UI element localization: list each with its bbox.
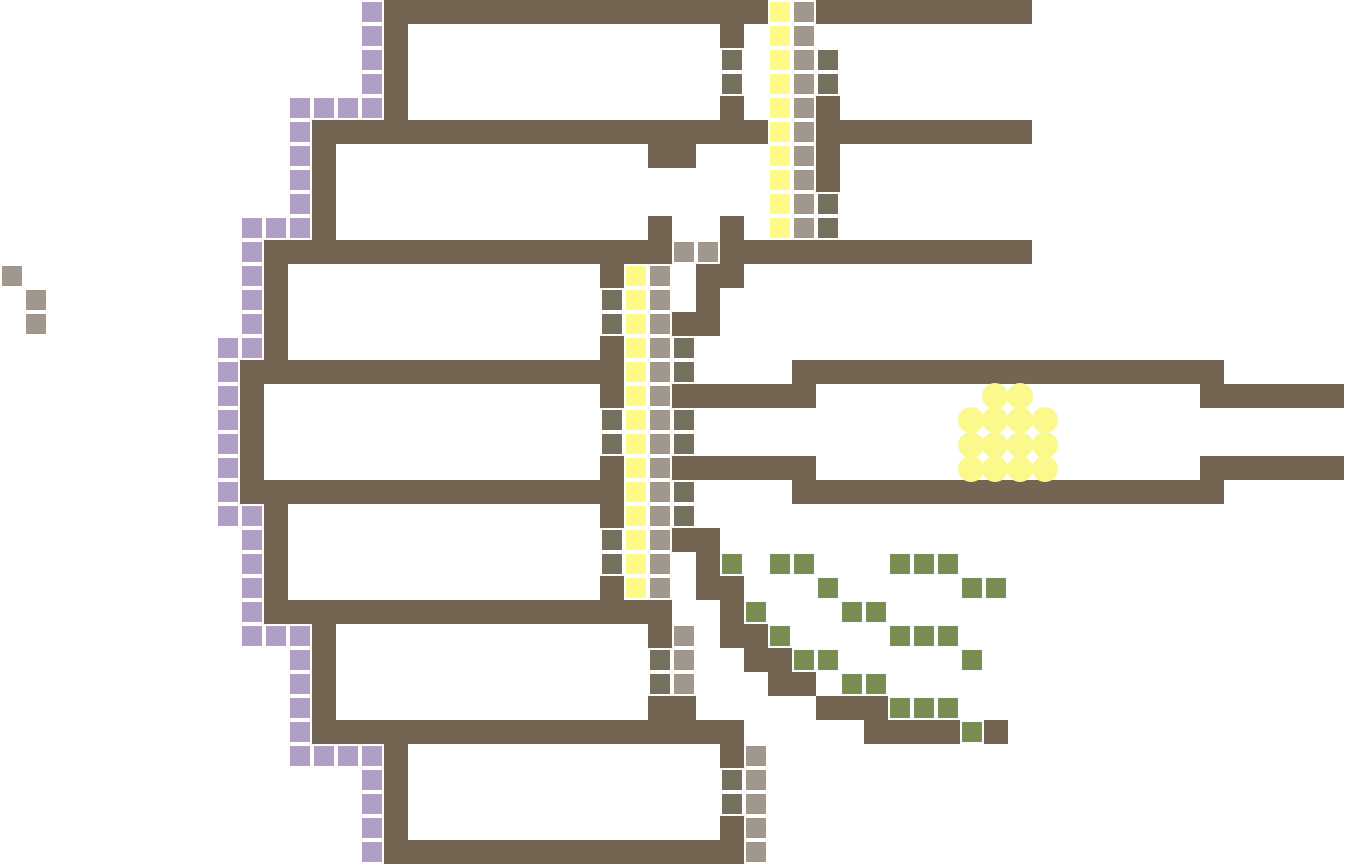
- tan-tile[interactable]: [650, 530, 670, 550]
- egg[interactable]: [1032, 456, 1058, 482]
- dark-tile[interactable]: [818, 50, 838, 70]
- purple-tile[interactable]: [242, 218, 262, 238]
- dark-tile[interactable]: [650, 674, 670, 694]
- purple-tile[interactable]: [242, 506, 262, 526]
- wall-block: [720, 216, 744, 240]
- yellow-tile[interactable]: [626, 578, 646, 598]
- dark-tile[interactable]: [674, 434, 694, 454]
- wall-block: [264, 240, 672, 264]
- wall-block: [240, 360, 600, 384]
- tan-tile[interactable]: [26, 314, 46, 334]
- wall-block: [264, 600, 672, 624]
- egg[interactable]: [958, 407, 984, 433]
- wall-block: [864, 720, 960, 744]
- green-tile[interactable]: [866, 602, 886, 622]
- wall-block: [720, 816, 744, 864]
- tan-tile[interactable]: [746, 770, 766, 790]
- wall-block: [672, 528, 720, 552]
- wall-block: [312, 624, 336, 744]
- tan-tile[interactable]: [650, 338, 670, 358]
- tan-tile[interactable]: [674, 242, 694, 262]
- yellow-tile[interactable]: [770, 2, 790, 22]
- purple-tile[interactable]: [242, 530, 262, 550]
- egg[interactable]: [958, 432, 984, 458]
- dark-tile[interactable]: [602, 434, 622, 454]
- purple-tile[interactable]: [242, 242, 262, 262]
- dark-tile[interactable]: [602, 314, 622, 334]
- purple-tile[interactable]: [218, 434, 238, 454]
- wall-block: [336, 120, 768, 144]
- egg[interactable]: [1007, 456, 1033, 482]
- purple-tile[interactable]: [362, 50, 382, 70]
- tan-tile[interactable]: [650, 362, 670, 382]
- dark-tile[interactable]: [722, 50, 742, 70]
- green-tile[interactable]: [842, 602, 862, 622]
- green-tile[interactable]: [890, 626, 910, 646]
- yellow-tile[interactable]: [626, 386, 646, 406]
- green-tile[interactable]: [866, 674, 886, 694]
- tan-tile[interactable]: [650, 434, 670, 454]
- egg[interactable]: [1032, 407, 1058, 433]
- dark-tile[interactable]: [674, 338, 694, 358]
- purple-tile[interactable]: [314, 98, 334, 118]
- green-tile[interactable]: [986, 578, 1006, 598]
- green-tile[interactable]: [770, 626, 790, 646]
- dark-tile[interactable]: [650, 650, 670, 670]
- wall-block: [816, 96, 840, 192]
- dark-tile[interactable]: [674, 410, 694, 430]
- green-tile[interactable]: [914, 698, 934, 718]
- wall-block: [816, 0, 1032, 24]
- green-tile[interactable]: [722, 554, 742, 574]
- wall-block: [264, 504, 288, 600]
- tan-tile[interactable]: [650, 506, 670, 526]
- green-tile[interactable]: [962, 578, 982, 598]
- tan-tile[interactable]: [650, 386, 670, 406]
- dark-tile[interactable]: [602, 554, 622, 574]
- tan-tile[interactable]: [794, 26, 814, 46]
- purple-tile[interactable]: [362, 794, 382, 814]
- purple-tile[interactable]: [362, 770, 382, 790]
- purple-tile[interactable]: [290, 98, 310, 118]
- yellow-tile[interactable]: [626, 530, 646, 550]
- purple-tile[interactable]: [242, 626, 262, 646]
- green-tile[interactable]: [914, 626, 934, 646]
- wall-block: [312, 120, 336, 240]
- green-tile[interactable]: [818, 578, 838, 598]
- yellow-tile[interactable]: [626, 458, 646, 478]
- tan-tile[interactable]: [650, 458, 670, 478]
- green-tile[interactable]: [794, 650, 814, 670]
- purple-tile[interactable]: [242, 266, 262, 286]
- wall-block: [648, 216, 672, 240]
- tan-tile[interactable]: [650, 410, 670, 430]
- tan-tile[interactable]: [674, 626, 694, 646]
- wall-block: [384, 24, 408, 120]
- wall-block: [816, 696, 888, 720]
- green-tile[interactable]: [794, 554, 814, 574]
- purple-tile[interactable]: [266, 218, 286, 238]
- yellow-tile[interactable]: [626, 410, 646, 430]
- tan-tile[interactable]: [794, 74, 814, 94]
- purple-tile[interactable]: [362, 2, 382, 22]
- purple-tile[interactable]: [362, 818, 382, 838]
- yellow-tile[interactable]: [770, 74, 790, 94]
- egg[interactable]: [1007, 432, 1033, 458]
- tan-tile[interactable]: [650, 266, 670, 286]
- wall-block: [384, 840, 720, 864]
- purple-tile[interactable]: [218, 338, 238, 358]
- purple-tile[interactable]: [362, 746, 382, 766]
- egg[interactable]: [1007, 407, 1033, 433]
- wall-block: [720, 576, 744, 648]
- tan-tile[interactable]: [794, 146, 814, 166]
- green-tile[interactable]: [770, 554, 790, 574]
- yellow-tile[interactable]: [770, 50, 790, 70]
- yellow-tile[interactable]: [626, 506, 646, 526]
- purple-tile[interactable]: [266, 626, 286, 646]
- purple-tile[interactable]: [290, 650, 310, 670]
- dark-tile[interactable]: [602, 290, 622, 310]
- green-tile[interactable]: [890, 698, 910, 718]
- wall-block: [768, 648, 792, 696]
- yellow-tile[interactable]: [626, 338, 646, 358]
- green-tile[interactable]: [962, 650, 982, 670]
- purple-tile[interactable]: [338, 746, 358, 766]
- tan-tile[interactable]: [794, 122, 814, 142]
- tan-tile[interactable]: [794, 98, 814, 118]
- purple-tile[interactable]: [338, 98, 358, 118]
- wall-block: [696, 552, 720, 600]
- green-tile[interactable]: [842, 674, 862, 694]
- purple-tile[interactable]: [290, 170, 310, 190]
- tan-tile[interactable]: [746, 746, 766, 766]
- yellow-tile[interactable]: [770, 146, 790, 166]
- tan-tile[interactable]: [674, 650, 694, 670]
- wall-block: [984, 720, 1008, 744]
- wall-block: [720, 96, 744, 120]
- purple-tile[interactable]: [242, 554, 262, 574]
- yellow-tile[interactable]: [770, 170, 790, 190]
- wall-block: [648, 624, 672, 648]
- wall-block: [720, 24, 744, 48]
- yellow-tile[interactable]: [626, 434, 646, 454]
- green-tile[interactable]: [890, 554, 910, 574]
- wall-block: [672, 312, 720, 336]
- dark-tile[interactable]: [674, 362, 694, 382]
- egg[interactable]: [1032, 432, 1058, 458]
- dark-tile[interactable]: [602, 410, 622, 430]
- dark-tile[interactable]: [818, 218, 838, 238]
- purple-tile[interactable]: [290, 698, 310, 718]
- tan-tile[interactable]: [650, 290, 670, 310]
- wall-block: [744, 624, 768, 672]
- purple-tile[interactable]: [290, 722, 310, 742]
- purple-tile[interactable]: [362, 842, 382, 862]
- tan-tile[interactable]: [650, 554, 670, 574]
- purple-tile[interactable]: [218, 410, 238, 430]
- wall-block: [600, 456, 624, 528]
- green-tile[interactable]: [938, 554, 958, 574]
- tan-tile[interactable]: [650, 482, 670, 502]
- purple-tile[interactable]: [362, 26, 382, 46]
- wall-block: [792, 672, 816, 696]
- tan-tile[interactable]: [746, 818, 766, 838]
- tan-tile[interactable]: [698, 242, 718, 262]
- wall-block: [792, 360, 1224, 384]
- wall-block: [384, 0, 768, 24]
- wall-block: [840, 120, 1032, 144]
- yellow-tile[interactable]: [626, 362, 646, 382]
- yellow-tile[interactable]: [626, 482, 646, 502]
- purple-tile[interactable]: [218, 506, 238, 526]
- wall-block: [696, 288, 720, 312]
- dark-tile[interactable]: [722, 770, 742, 790]
- tan-tile[interactable]: [26, 290, 46, 310]
- wall-block: [600, 264, 624, 288]
- purple-tile[interactable]: [218, 458, 238, 478]
- wall-block: [600, 336, 624, 408]
- tan-tile[interactable]: [674, 674, 694, 694]
- yellow-tile[interactable]: [626, 314, 646, 334]
- tan-tile[interactable]: [794, 2, 814, 22]
- purple-tile[interactable]: [218, 362, 238, 382]
- egg[interactable]: [982, 456, 1008, 482]
- wall-block: [696, 264, 744, 288]
- tan-tile[interactable]: [746, 842, 766, 862]
- wall-block: [672, 456, 816, 480]
- dark-tile[interactable]: [674, 482, 694, 502]
- yellow-tile[interactable]: [770, 98, 790, 118]
- purple-tile[interactable]: [290, 194, 310, 214]
- green-tile[interactable]: [746, 602, 766, 622]
- tan-tile[interactable]: [2, 266, 22, 286]
- tan-tile[interactable]: [794, 170, 814, 190]
- dark-tile[interactable]: [602, 530, 622, 550]
- wall-block: [720, 240, 1032, 264]
- wall-block: [1200, 456, 1344, 480]
- wall-block: [648, 696, 696, 720]
- dark-tile[interactable]: [722, 794, 742, 814]
- dark-tile[interactable]: [722, 74, 742, 94]
- egg[interactable]: [982, 432, 1008, 458]
- tan-tile[interactable]: [650, 578, 670, 598]
- game-board[interactable]: [0, 0, 1345, 865]
- wall-block: [720, 744, 744, 768]
- yellow-tile[interactable]: [770, 122, 790, 142]
- purple-tile[interactable]: [290, 674, 310, 694]
- purple-tile[interactable]: [290, 626, 310, 646]
- purple-tile[interactable]: [218, 386, 238, 406]
- purple-tile[interactable]: [362, 98, 382, 118]
- purple-tile[interactable]: [290, 122, 310, 142]
- wall-block: [264, 264, 288, 360]
- green-tile[interactable]: [914, 554, 934, 574]
- purple-tile[interactable]: [218, 482, 238, 502]
- wall-block: [336, 720, 744, 744]
- tan-tile[interactable]: [794, 218, 814, 238]
- egg[interactable]: [1007, 383, 1033, 409]
- wall-block: [600, 576, 624, 600]
- purple-tile[interactable]: [242, 602, 262, 622]
- yellow-tile[interactable]: [626, 554, 646, 574]
- purple-tile[interactable]: [290, 746, 310, 766]
- purple-tile[interactable]: [362, 74, 382, 94]
- egg[interactable]: [982, 407, 1008, 433]
- yellow-tile[interactable]: [770, 218, 790, 238]
- wall-block: [384, 744, 408, 840]
- wall-block: [1200, 384, 1344, 408]
- yellow-tile[interactable]: [770, 26, 790, 46]
- green-tile[interactable]: [962, 722, 982, 742]
- purple-tile[interactable]: [314, 746, 334, 766]
- tan-tile[interactable]: [794, 50, 814, 70]
- purple-tile[interactable]: [242, 578, 262, 598]
- tan-tile[interactable]: [650, 314, 670, 334]
- tan-tile[interactable]: [794, 194, 814, 214]
- dark-tile[interactable]: [818, 194, 838, 214]
- purple-tile[interactable]: [242, 290, 262, 310]
- egg[interactable]: [958, 456, 984, 482]
- wall-block: [792, 480, 1224, 504]
- purple-tile[interactable]: [290, 218, 310, 238]
- yellow-tile[interactable]: [770, 194, 790, 214]
- wall-block: [648, 144, 696, 168]
- purple-tile[interactable]: [290, 146, 310, 166]
- wall-block: [240, 480, 600, 504]
- dark-tile[interactable]: [818, 74, 838, 94]
- dark-tile[interactable]: [674, 506, 694, 526]
- green-tile[interactable]: [818, 650, 838, 670]
- wall-block: [240, 384, 264, 480]
- tan-tile[interactable]: [746, 794, 766, 814]
- green-tile[interactable]: [938, 626, 958, 646]
- egg[interactable]: [982, 383, 1008, 409]
- wall-block: [672, 384, 816, 408]
- purple-tile[interactable]: [242, 338, 262, 358]
- yellow-tile[interactable]: [626, 266, 646, 286]
- purple-tile[interactable]: [242, 314, 262, 334]
- yellow-tile[interactable]: [626, 290, 646, 310]
- green-tile[interactable]: [938, 698, 958, 718]
